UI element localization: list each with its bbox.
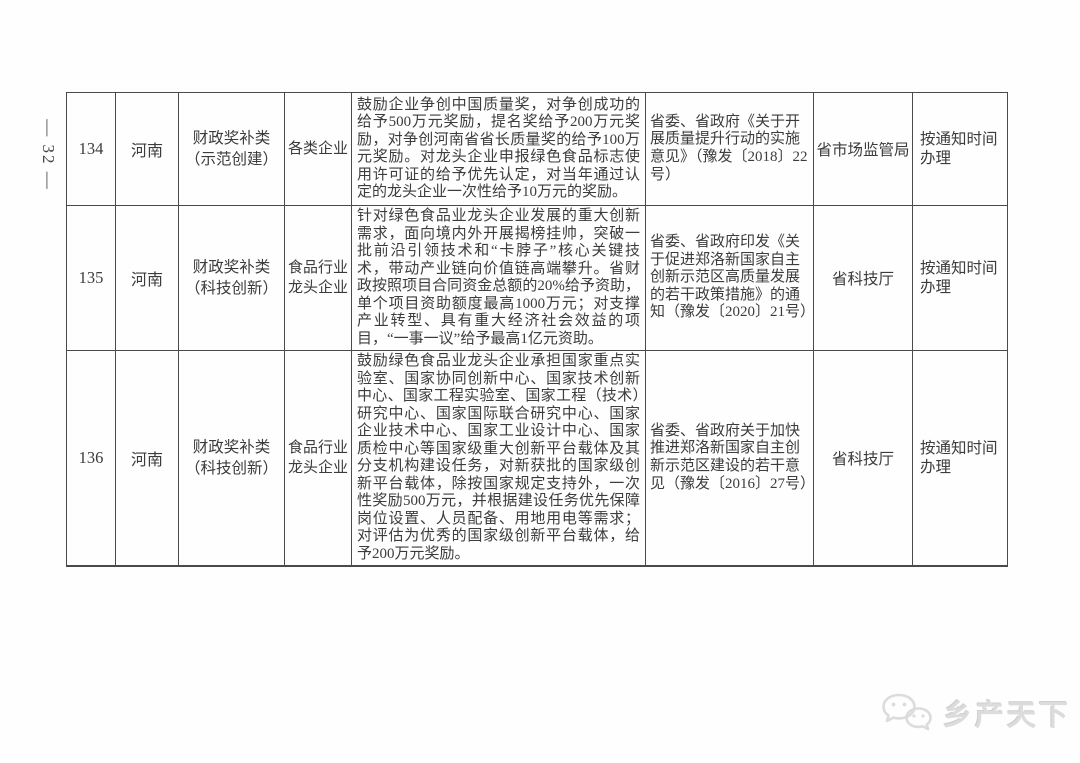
cell-target: 食品行业龙头企业 (285, 206, 352, 351)
table-row: 135 河南 财政奖补类 （科技创新） 食品行业龙头企业 针对绿色食品业龙头企业… (67, 206, 1008, 351)
cell-target: 各类企业 (285, 93, 352, 206)
cell-schedule: 按通知时间办理 (913, 93, 1008, 206)
category-main: 财政奖补类 (181, 257, 282, 278)
document-page: — 32 — 134 河南 财政奖补类 （示范创建） 各类企业 鼓励企业争创中国… (0, 0, 1080, 763)
cell-policy-basis: 省委、省政府《关于开展质量提升行动的实施意见》（豫发〔2018〕22号） (646, 93, 814, 206)
policy-table: 134 河南 财政奖补类 （示范创建） 各类企业 鼓励企业争创中国质量奖，对争创… (66, 92, 1008, 567)
category-sub: （示范创建） (181, 149, 282, 170)
cell-category: 财政奖补类 （科技创新） (179, 206, 285, 351)
wechat-logo-icon (878, 690, 934, 736)
cell-policy-basis: 省委、省政府印发《关于促进郑洛新国家自主创新示范区高质量发展的若干政策措施》的通… (646, 206, 814, 351)
cell-province: 河南 (116, 206, 179, 351)
cell-policy-content: 鼓励绿色食品业龙头企业承担国家重点实验室、国家协同创新中心、国家技术创新中心、国… (352, 351, 646, 567)
table-row: 134 河南 财政奖补类 （示范创建） 各类企业 鼓励企业争创中国质量奖，对争创… (67, 93, 1008, 206)
cell-index: 135 (67, 206, 116, 351)
cell-policy-content: 针对绿色食品业龙头企业发展的重大创新需求，面向境内外开展揭榜挂帅，突破一批前沿引… (352, 206, 646, 351)
cell-department: 省市场监管局 (814, 93, 913, 206)
cell-policy-content: 鼓励企业争创中国质量奖，对争创成功的给予500万元奖励，提名奖给予200万元奖励… (352, 93, 646, 206)
watermark-text: 乡产天下 (943, 692, 1071, 734)
cell-schedule: 按通知时间办理 (913, 206, 1008, 351)
cell-policy-basis: 省委、省政府关于加快推进郑洛新国家自主创新示范区建设的若干意见（豫发〔2016〕… (646, 351, 814, 567)
category-main: 财政奖补类 (181, 437, 282, 458)
cell-schedule: 按通知时间办理 (913, 351, 1008, 567)
page-number: — 32 — (38, 90, 58, 220)
watermark: 乡产天下 (878, 690, 1071, 736)
cell-department: 省科技厅 (814, 351, 913, 567)
category-sub: （科技创新） (181, 278, 282, 299)
table-row: 136 河南 财政奖补类 （科技创新） 食品行业龙头企业 鼓励绿色食品业龙头企业… (67, 351, 1008, 567)
cell-province: 河南 (116, 351, 179, 567)
cell-index: 134 (67, 93, 116, 206)
cell-target: 食品行业龙头企业 (285, 351, 352, 567)
category-main: 财政奖补类 (181, 128, 282, 149)
cell-department: 省科技厅 (814, 206, 913, 351)
cell-category: 财政奖补类 （示范创建） (179, 93, 285, 206)
cell-province: 河南 (116, 93, 179, 206)
cell-category: 财政奖补类 （科技创新） (179, 351, 285, 567)
cell-index: 136 (67, 351, 116, 567)
category-sub: （科技创新） (181, 458, 282, 479)
